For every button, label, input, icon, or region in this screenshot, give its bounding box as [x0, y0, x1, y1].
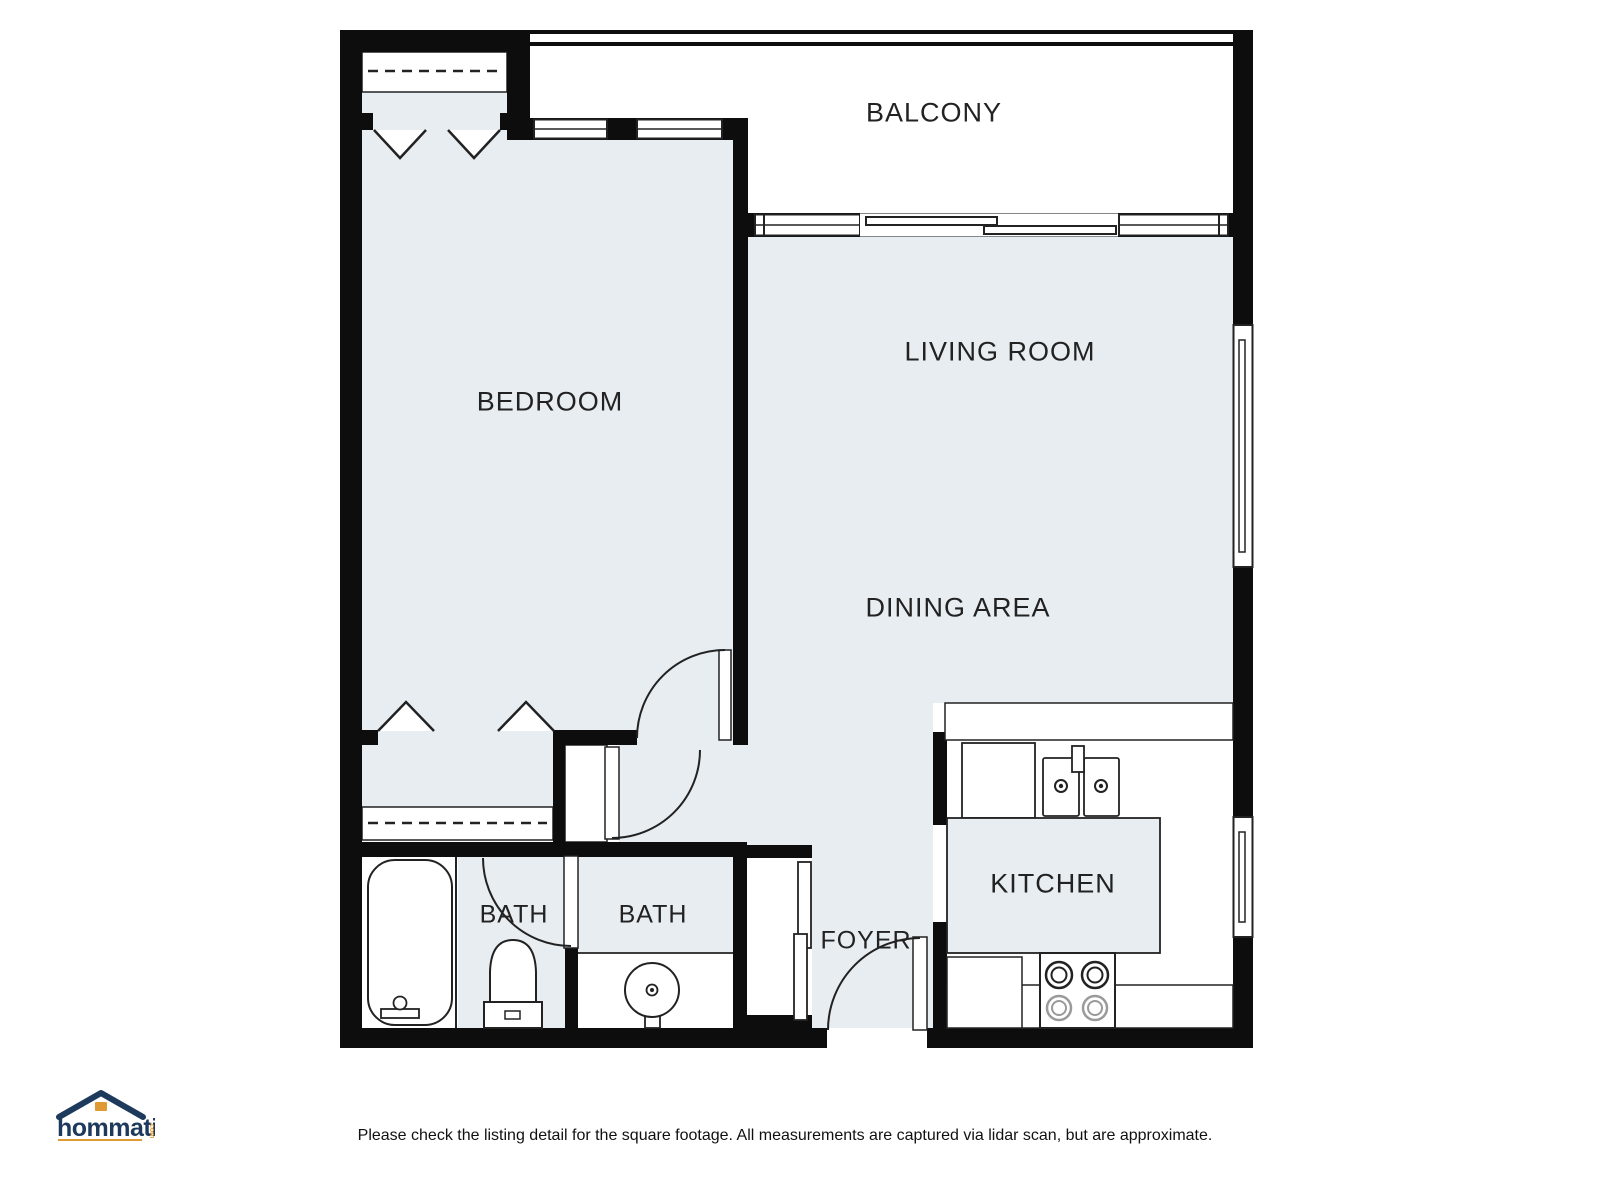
bedroom-window-1	[534, 120, 607, 139]
kitchen-fixtures	[945, 703, 1233, 1028]
living-dining-floor	[748, 237, 1233, 703]
logo-tld: .com	[148, 1122, 155, 1138]
floor-plan-page: BALCONY BEDROOM LIVING ROOM DINING AREA …	[0, 0, 1600, 1200]
bathtub-icon	[368, 860, 452, 1025]
room-label-bedroom: BEDROOM	[477, 387, 624, 418]
floor-plan-drawing	[0, 0, 1600, 1200]
logo-wordmark: hommati	[57, 1114, 155, 1142]
bedroom-window-2	[637, 120, 722, 139]
bedroom-floor	[362, 125, 733, 745]
hall-floor	[619, 745, 748, 845]
logo-window-icon	[95, 1102, 107, 1111]
double-kitchen-sink-icon	[1043, 746, 1119, 816]
hommati-logo: hommati .com	[55, 1086, 155, 1144]
room-label-balcony: BALCONY	[866, 98, 1002, 129]
toilet-icon	[484, 940, 542, 1028]
room-label-living-room: LIVING ROOM	[904, 337, 1095, 368]
room-label-kitchen: KITCHEN	[990, 869, 1116, 900]
kitchen-counter-top	[945, 703, 1233, 740]
room-label-bath-2: BATH	[619, 901, 688, 930]
stove-icon	[1040, 953, 1115, 1028]
kitchen-cabinet	[947, 957, 1022, 1028]
room-label-bath-1: BATH	[480, 901, 549, 930]
bedroom-closet-bottom-floor	[362, 745, 553, 807]
balcony-railing	[530, 30, 1233, 34]
sliding-glass-door	[860, 214, 1120, 237]
living-room-window-1	[755, 215, 860, 236]
refrigerator-icon	[962, 743, 1035, 818]
closet-shelf-top	[362, 52, 507, 92]
disclaimer-text: Please check the listing detail for the …	[358, 1127, 1213, 1145]
bedroom-closet-top-floor	[362, 92, 507, 132]
room-label-dining-area: DINING AREA	[865, 593, 1050, 624]
room-label-foyer: FOYER	[820, 927, 911, 956]
balcony-railing-2	[530, 42, 1233, 46]
living-room-window-2	[1119, 215, 1228, 236]
linen-closet-interior	[565, 745, 607, 842]
entry-door-opening	[827, 1028, 927, 1048]
right-wall-window-2	[1234, 817, 1253, 937]
logo-underline	[58, 1139, 142, 1141]
right-wall-window-1	[1234, 325, 1253, 567]
pedestal-sink-icon	[625, 963, 679, 1028]
